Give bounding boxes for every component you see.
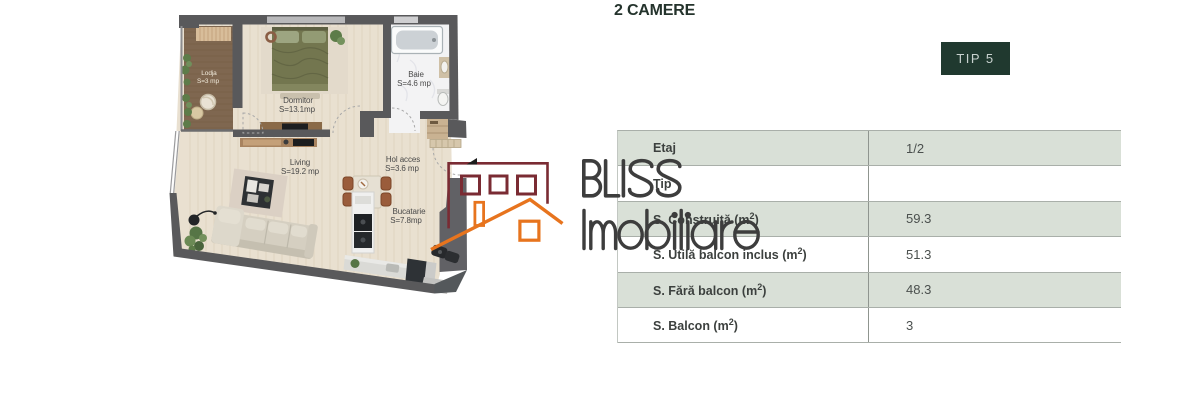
svg-text:S=3.6 mp: S=3.6 mp (385, 164, 419, 173)
svg-text:Bucatarie: Bucatarie (393, 207, 427, 216)
svg-text:Baie: Baie (408, 70, 424, 79)
svg-text:S=13.1mp: S=13.1mp (279, 105, 316, 114)
svg-text:Living: Living (290, 158, 310, 167)
svg-text:S=3 mp: S=3 mp (197, 78, 219, 85)
svg-text:Dormitor: Dormitor (283, 96, 313, 105)
svg-text:S=19.2 mp: S=19.2 mp (281, 167, 320, 176)
svg-text:S=4.6 mp: S=4.6 mp (397, 79, 431, 88)
svg-text:Lodja: Lodja (201, 70, 217, 77)
svg-text:Hol acces: Hol acces (386, 155, 420, 164)
svg-text:S=7.8mp: S=7.8mp (390, 216, 422, 225)
